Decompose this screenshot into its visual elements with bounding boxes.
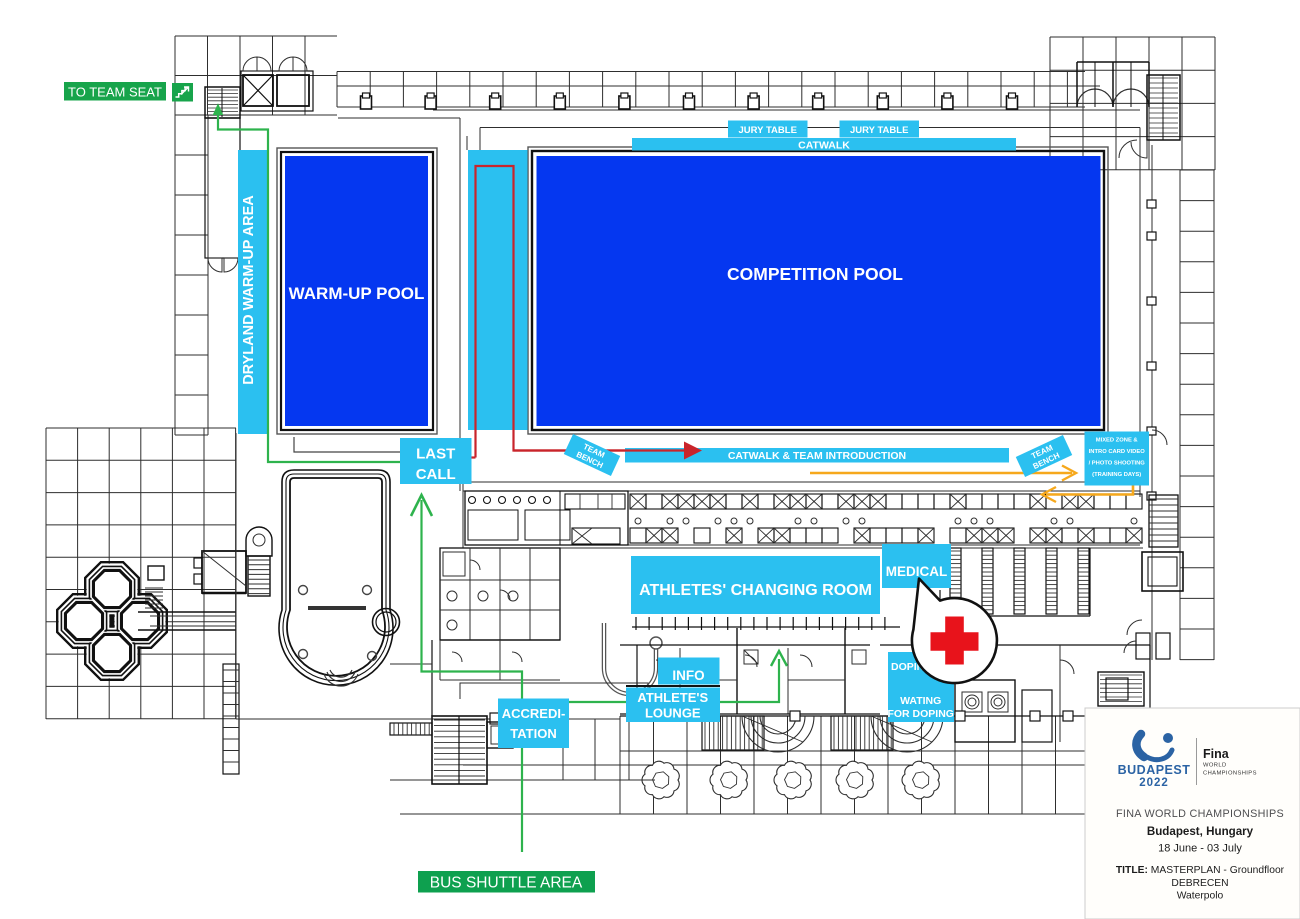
svg-text:Fina: Fina	[1203, 747, 1230, 761]
svg-text:INFO: INFO	[672, 668, 704, 683]
svg-text:COMPETITION POOL: COMPETITION POOL	[727, 264, 903, 284]
svg-text:TITLE: MASTERPLAN - Groundfloo: TITLE: MASTERPLAN - Groundfloor	[1116, 865, 1285, 876]
svg-text:/ PHOTO SHOOTING: / PHOTO SHOOTING	[1089, 461, 1146, 467]
svg-text:CHAMPIONSHIPS: CHAMPIONSHIPS	[1203, 771, 1257, 777]
svg-text:MIXED ZONE &: MIXED ZONE &	[1096, 438, 1138, 444]
svg-text:Budapest, Hungary: Budapest, Hungary	[1147, 825, 1254, 838]
svg-text:LAST: LAST	[416, 446, 455, 463]
svg-text:ATHLETES' CHANGING ROOM: ATHLETES' CHANGING ROOM	[639, 582, 872, 599]
svg-text:(TRAINING DAYS): (TRAINING DAYS)	[1092, 472, 1141, 478]
svg-text:MEDICAL: MEDICAL	[886, 564, 948, 579]
svg-text:CALL: CALL	[416, 466, 456, 483]
svg-text:WARM-UP POOL: WARM-UP POOL	[289, 284, 425, 303]
svg-text:BUS SHUTTLE AREA: BUS SHUTTLE AREA	[430, 875, 583, 892]
svg-text:2022: 2022	[1139, 777, 1169, 789]
svg-text:WATING: WATING	[900, 695, 941, 707]
svg-text:FOR DOPING: FOR DOPING	[887, 708, 954, 720]
svg-text:DEBRECEN: DEBRECEN	[1171, 878, 1228, 889]
svg-text:CATWALK: CATWALK	[798, 139, 850, 151]
svg-text:Waterpolo: Waterpolo	[1177, 891, 1224, 902]
svg-text:FINA WORLD CHAMPIONSHIPS: FINA WORLD CHAMPIONSHIPS	[1116, 808, 1284, 820]
svg-text:WORLD: WORLD	[1203, 763, 1227, 769]
svg-text:INTRO CARD VIDEO: INTRO CARD VIDEO	[1089, 449, 1146, 455]
svg-text:ACCREDI-: ACCREDI-	[502, 706, 566, 721]
svg-text:JURY TABLE: JURY TABLE	[738, 125, 796, 136]
svg-text:TATION: TATION	[510, 726, 556, 741]
svg-text:18 June - 03 July: 18 June - 03 July	[1158, 843, 1242, 855]
svg-text:TO TEAM SEAT: TO TEAM SEAT	[68, 85, 162, 100]
svg-text:LOUNGE: LOUNGE	[645, 706, 701, 721]
svg-text:JURY TABLE: JURY TABLE	[850, 125, 908, 136]
svg-text:BUDAPEST: BUDAPEST	[1118, 763, 1191, 777]
svg-text:CATWALK & TEAM INTRODUCTION: CATWALK & TEAM INTRODUCTION	[728, 450, 906, 462]
svg-text:DRYLAND WARM-UP AREA: DRYLAND WARM-UP AREA	[241, 195, 257, 385]
svg-text:ATHLETE'S: ATHLETE'S	[637, 690, 708, 705]
